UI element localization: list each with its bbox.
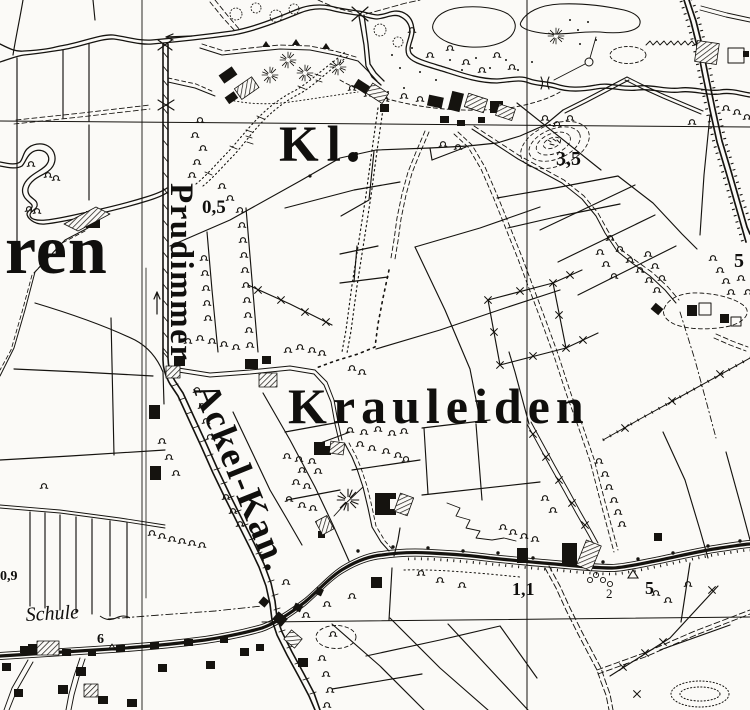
svg-text:Krauleiden: Krauleiden [288, 378, 590, 434]
svg-text:2: 2 [606, 586, 613, 601]
svg-text:5: 5 [645, 578, 654, 598]
svg-text:1,1: 1,1 [512, 579, 535, 599]
svg-text:5: 5 [734, 250, 744, 272]
svg-text:ren: ren [5, 212, 108, 289]
svg-text:Schule: Schule [25, 601, 80, 626]
svg-text:3,5: 3,5 [556, 148, 581, 170]
svg-text:6: 6 [97, 632, 104, 647]
svg-text:Kl: Kl [279, 117, 349, 173]
svg-text:Prudimmer: Prudimmer [163, 183, 199, 361]
svg-text:0,5: 0,5 [202, 197, 226, 218]
svg-text:0,9: 0,9 [0, 569, 18, 584]
